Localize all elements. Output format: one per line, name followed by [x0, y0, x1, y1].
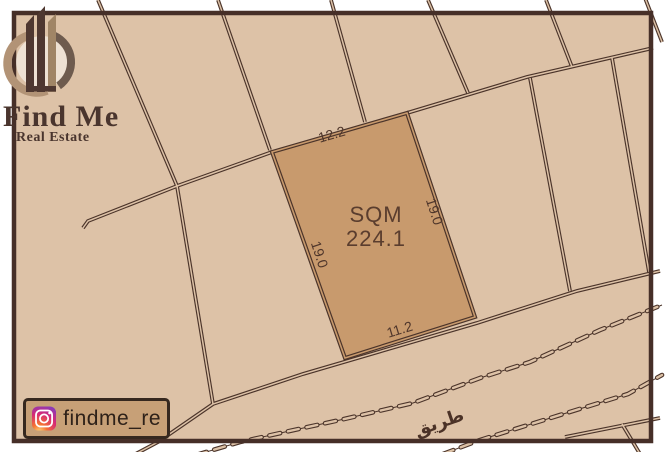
instagram-icon: [32, 405, 56, 432]
instagram-handle-badge[interactable]: findme_re: [23, 398, 170, 439]
brand-name: Find Me: [3, 100, 119, 133]
area-value-label: 224.1: [346, 226, 406, 251]
cadastral-map: 12.2 19.0 19.0 11.2 SQM 224.1 طريق Find …: [0, 0, 668, 452]
brand-tagline: Real Estate: [16, 130, 90, 145]
logo-building-bar-1: [26, 15, 34, 92]
instagram-handle-text: findme_re: [63, 408, 161, 429]
logo-building-bar-2: [37, 6, 45, 92]
logo-building-bar-3: [48, 14, 56, 92]
logo-building-base: [26, 86, 56, 92]
area-unit-label: SQM: [349, 202, 402, 227]
plot-map-image: 12.2 19.0 19.0 11.2 SQM 224.1 طريق Find …: [0, 0, 668, 452]
